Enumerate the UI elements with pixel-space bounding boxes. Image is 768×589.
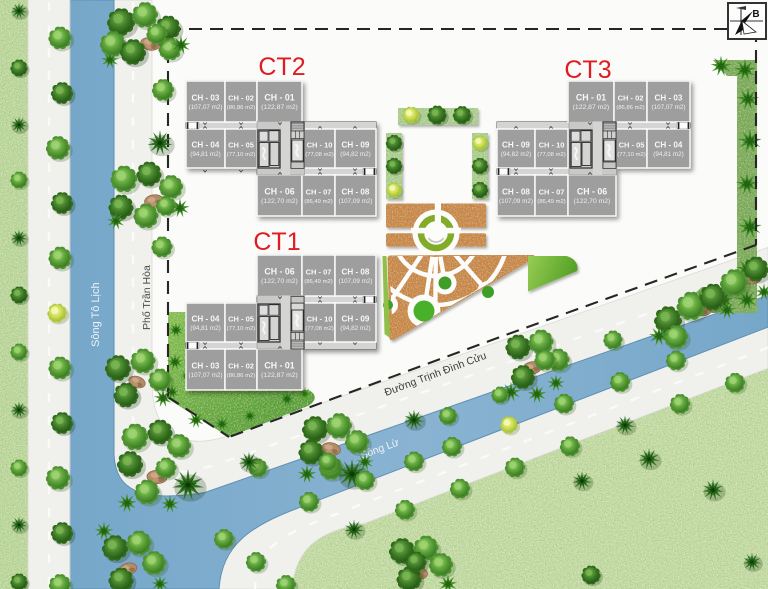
svg-text:(77,08 m2): (77,08 m2) (537, 152, 566, 158)
svg-text:(122,87 m2): (122,87 m2) (573, 104, 610, 111)
svg-text:(86,86 m2): (86,86 m2) (227, 373, 256, 379)
svg-text:CH - 08: CH - 08 (342, 268, 370, 277)
svg-text:CH - 02: CH - 02 (228, 362, 254, 371)
svg-text:CH - 02: CH - 02 (618, 94, 644, 103)
svg-text:(77,10 m2): (77,10 m2) (617, 152, 646, 158)
svg-text:(94,82 m2): (94,82 m2) (340, 325, 370, 332)
svg-text:CH - 06: CH - 06 (264, 187, 294, 197)
svg-text:(86,86 m2): (86,86 m2) (616, 105, 645, 111)
svg-text:(122,70 m2): (122,70 m2) (261, 278, 298, 285)
svg-text:CT3: CT3 (564, 56, 611, 84)
svg-text:CH - 10: CH - 10 (307, 315, 333, 324)
svg-text:Sông Tô Lịch: Sông Tô Lịch (90, 282, 102, 347)
svg-text:CH - 03: CH - 03 (192, 94, 220, 103)
svg-text:CH - 09: CH - 09 (342, 141, 370, 150)
svg-text:CH - 09: CH - 09 (502, 141, 530, 150)
svg-text:(122,87 m2): (122,87 m2) (261, 104, 298, 111)
svg-text:(122,70 m2): (122,70 m2) (574, 198, 611, 205)
svg-text:CH - 05: CH - 05 (228, 315, 254, 324)
svg-text:(77,10 m2): (77,10 m2) (227, 326, 256, 332)
svg-text:CH - 01: CH - 01 (264, 361, 294, 371)
svg-text:(86,49 m2): (86,49 m2) (304, 279, 333, 285)
svg-text:CH - 06: CH - 06 (264, 267, 294, 277)
svg-text:(94,82 m2): (94,82 m2) (501, 151, 531, 158)
svg-text:(107,09 m2): (107,09 m2) (499, 198, 533, 205)
svg-text:CH - 04: CH - 04 (655, 141, 683, 150)
svg-text:(94,81 m2): (94,81 m2) (190, 325, 220, 332)
svg-text:CH - 02: CH - 02 (228, 94, 254, 103)
svg-text:CH - 07: CH - 07 (539, 188, 565, 197)
svg-text:(107,09 m2): (107,09 m2) (339, 278, 373, 285)
svg-text:CH - 04: CH - 04 (192, 315, 220, 324)
svg-text:CH - 08: CH - 08 (502, 188, 530, 197)
svg-text:CH - 05: CH - 05 (228, 141, 254, 150)
svg-text:(77,08 m2): (77,08 m2) (305, 152, 334, 158)
svg-text:CT2: CT2 (258, 53, 305, 81)
svg-text:(86,49 m2): (86,49 m2) (537, 199, 566, 205)
svg-text:CH - 06: CH - 06 (577, 187, 607, 197)
svg-text:(94,81 m2): (94,81 m2) (653, 151, 683, 158)
svg-text:CH - 07: CH - 07 (306, 188, 332, 197)
svg-text:(107,09 m2): (107,09 m2) (339, 198, 373, 205)
svg-text:(107,07 m2): (107,07 m2) (652, 104, 686, 111)
svg-text:CH - 07: CH - 07 (306, 268, 332, 277)
svg-text:(77,10 m2): (77,10 m2) (227, 152, 256, 158)
svg-text:(107,07 m2): (107,07 m2) (189, 104, 223, 111)
svg-text:CH - 01: CH - 01 (264, 93, 294, 103)
svg-text:(86,86 m2): (86,86 m2) (227, 105, 256, 111)
svg-text:(122,70 m2): (122,70 m2) (261, 198, 298, 205)
svg-text:CH - 10: CH - 10 (307, 141, 333, 150)
svg-text:CT1: CT1 (253, 228, 300, 256)
svg-text:Phố Trần Hòa: Phố Trần Hòa (141, 265, 153, 330)
svg-text:(122,87 m2): (122,87 m2) (261, 372, 298, 379)
svg-text:(86,49 m2): (86,49 m2) (304, 199, 333, 205)
svg-text:CH - 09: CH - 09 (342, 315, 370, 324)
svg-text:CH - 05: CH - 05 (619, 141, 645, 150)
svg-text:(94,81 m2): (94,81 m2) (190, 151, 220, 158)
svg-text:B: B (752, 9, 759, 20)
svg-text:(107,07 m2): (107,07 m2) (189, 372, 223, 379)
svg-text:CH - 04: CH - 04 (192, 141, 220, 150)
svg-text:(94,82 m2): (94,82 m2) (340, 151, 370, 158)
svg-text:CH - 10: CH - 10 (539, 141, 565, 150)
svg-text:CH - 01: CH - 01 (576, 93, 606, 103)
svg-text:(77,08 m2): (77,08 m2) (305, 326, 334, 332)
svg-text:CH - 03: CH - 03 (655, 94, 683, 103)
svg-text:CH - 08: CH - 08 (342, 188, 370, 197)
svg-text:CH - 03: CH - 03 (192, 362, 220, 371)
